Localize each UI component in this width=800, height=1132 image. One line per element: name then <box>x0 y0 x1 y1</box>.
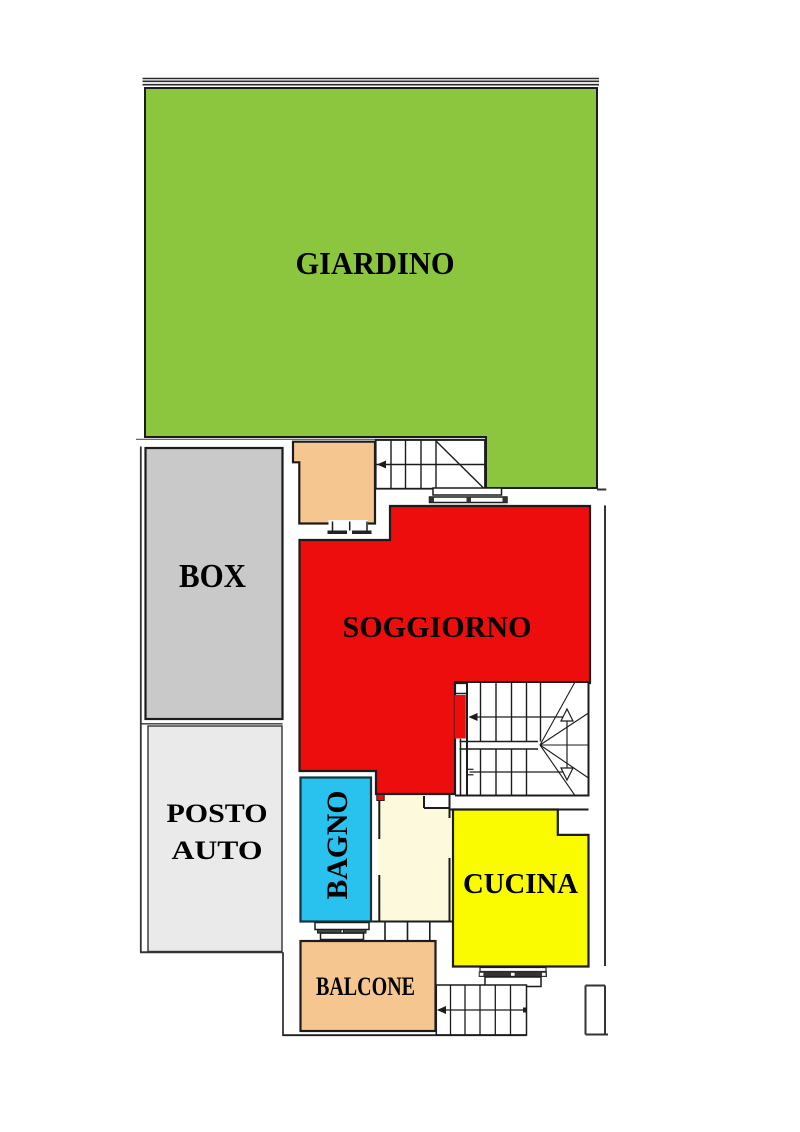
svg-text:SOGGIORNO: SOGGIORNO <box>343 609 532 644</box>
svg-text:CUCINA: CUCINA <box>463 868 578 900</box>
svg-text:BAGNO: BAGNO <box>321 791 354 900</box>
svg-text:GIARDINO: GIARDINO <box>296 245 455 281</box>
svg-text:BALCONE: BALCONE <box>316 972 415 1001</box>
svg-text:AUTO: AUTO <box>172 836 263 865</box>
svg-text:POSTO: POSTO <box>167 799 268 828</box>
svg-text:BOX: BOX <box>179 558 246 595</box>
